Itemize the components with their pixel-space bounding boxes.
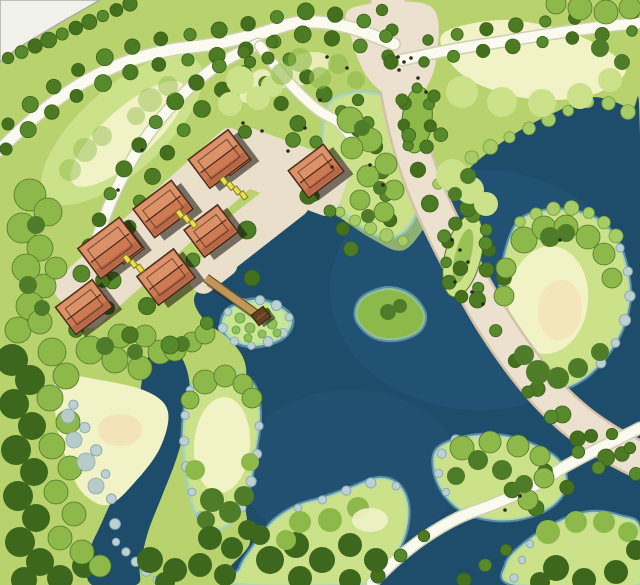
shore-lawn-west-peach [98,414,142,446]
lawn-bottomcenter [352,508,388,532]
landscape-masterplan-page [0,0,640,585]
site-plan-map [0,0,640,585]
